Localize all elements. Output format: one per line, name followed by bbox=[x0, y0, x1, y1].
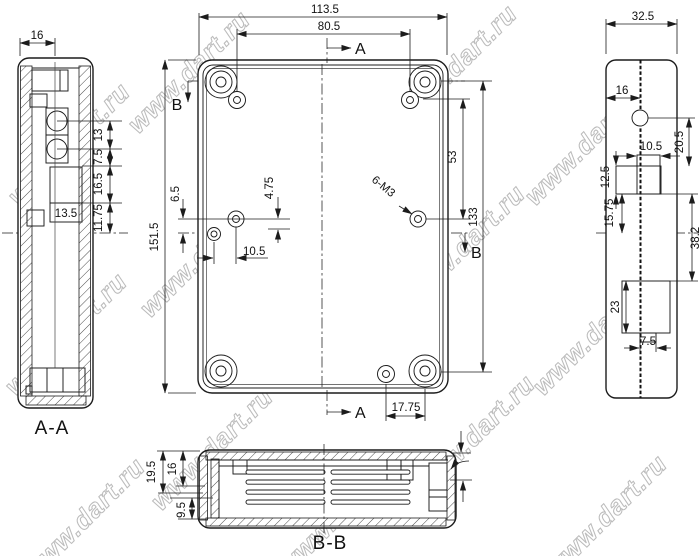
dim-main-4-75: 4.75 bbox=[264, 177, 276, 199]
dim-side-overall-depth: 32.5 bbox=[632, 11, 654, 23]
dim-side-38-2: 38.2 bbox=[690, 227, 700, 249]
section-arrow-a-bottom: A bbox=[327, 390, 366, 422]
mid-boss-hole-right-m3 bbox=[410, 211, 426, 227]
section-label-aa: A-A bbox=[35, 418, 70, 439]
dim-main-10-5: 10.5 bbox=[243, 246, 265, 258]
view-side-right: 32.5 16 20.5 10.5 12.5 15.75 38.2 23 7.5 bbox=[600, 11, 700, 398]
dim-main-133: 133 bbox=[468, 207, 480, 226]
dim-side-7-5: 7.5 bbox=[640, 336, 656, 348]
watermark-text: www.dart.ru bbox=[16, 451, 151, 556]
dim-side-20-5: 20.5 bbox=[674, 131, 686, 153]
dim-side-12-5: 12.5 bbox=[600, 166, 612, 188]
dim-main-overall-height: 151.5 bbox=[149, 223, 161, 252]
section-label-bb: B-B bbox=[313, 533, 348, 554]
dim-bb-19-5: 19.5 bbox=[146, 461, 158, 483]
view-main: 113.5 80.5 151.5 6.5 4.75 10.5 6-M3 53 1… bbox=[149, 4, 492, 422]
dim-bb-9-5: 9.5 bbox=[176, 502, 188, 518]
screw-hole-bottom bbox=[378, 366, 395, 383]
cut-label-b: B bbox=[172, 97, 183, 114]
dim-main-overall-width: 113.5 bbox=[311, 4, 339, 16]
dim-aa-boss-pitch: 13 bbox=[93, 129, 105, 142]
drawing-page: www.dart.ru www.dart.ru www.dart.ru www.… bbox=[0, 0, 700, 556]
dim-side-10-5: 10.5 bbox=[640, 141, 662, 153]
cut-label-a: A bbox=[355, 405, 366, 422]
dim-aa-top-width: 16 bbox=[31, 30, 44, 42]
watermark-text: www.dart.ru bbox=[538, 448, 673, 556]
side-hole bbox=[632, 110, 648, 126]
dim-aa-16-5: 16.5 bbox=[93, 173, 105, 195]
mid-hole-left-lower bbox=[208, 228, 221, 241]
technical-drawing-canvas: www.dart.ru www.dart.ru www.dart.ru www.… bbox=[0, 0, 700, 556]
cut-label-a: A bbox=[355, 41, 366, 58]
section-arrow-a-top: A bbox=[327, 38, 366, 63]
dim-main-17-75: 17.75 bbox=[392, 402, 421, 414]
dim-aa-7-5: 7.5 bbox=[93, 149, 105, 165]
dim-main-53: 53 bbox=[447, 151, 459, 164]
screw-hole-top-left bbox=[229, 92, 246, 109]
dim-main-hole-span: 80.5 bbox=[318, 21, 340, 33]
dim-bb-16: 16 bbox=[167, 463, 179, 476]
dim-aa-inner-width: 13.5 bbox=[55, 208, 77, 220]
dim-side-15-75: 15.75 bbox=[604, 199, 616, 228]
dim-aa-11-75: 11.75 bbox=[93, 204, 105, 232]
dim-main-6-5: 6.5 bbox=[170, 186, 182, 202]
cut-label-b: B bbox=[471, 245, 482, 262]
dim-side-23: 23 bbox=[610, 301, 622, 314]
dim-side-16: 16 bbox=[616, 85, 629, 97]
screw-hole-top-right bbox=[402, 92, 419, 109]
